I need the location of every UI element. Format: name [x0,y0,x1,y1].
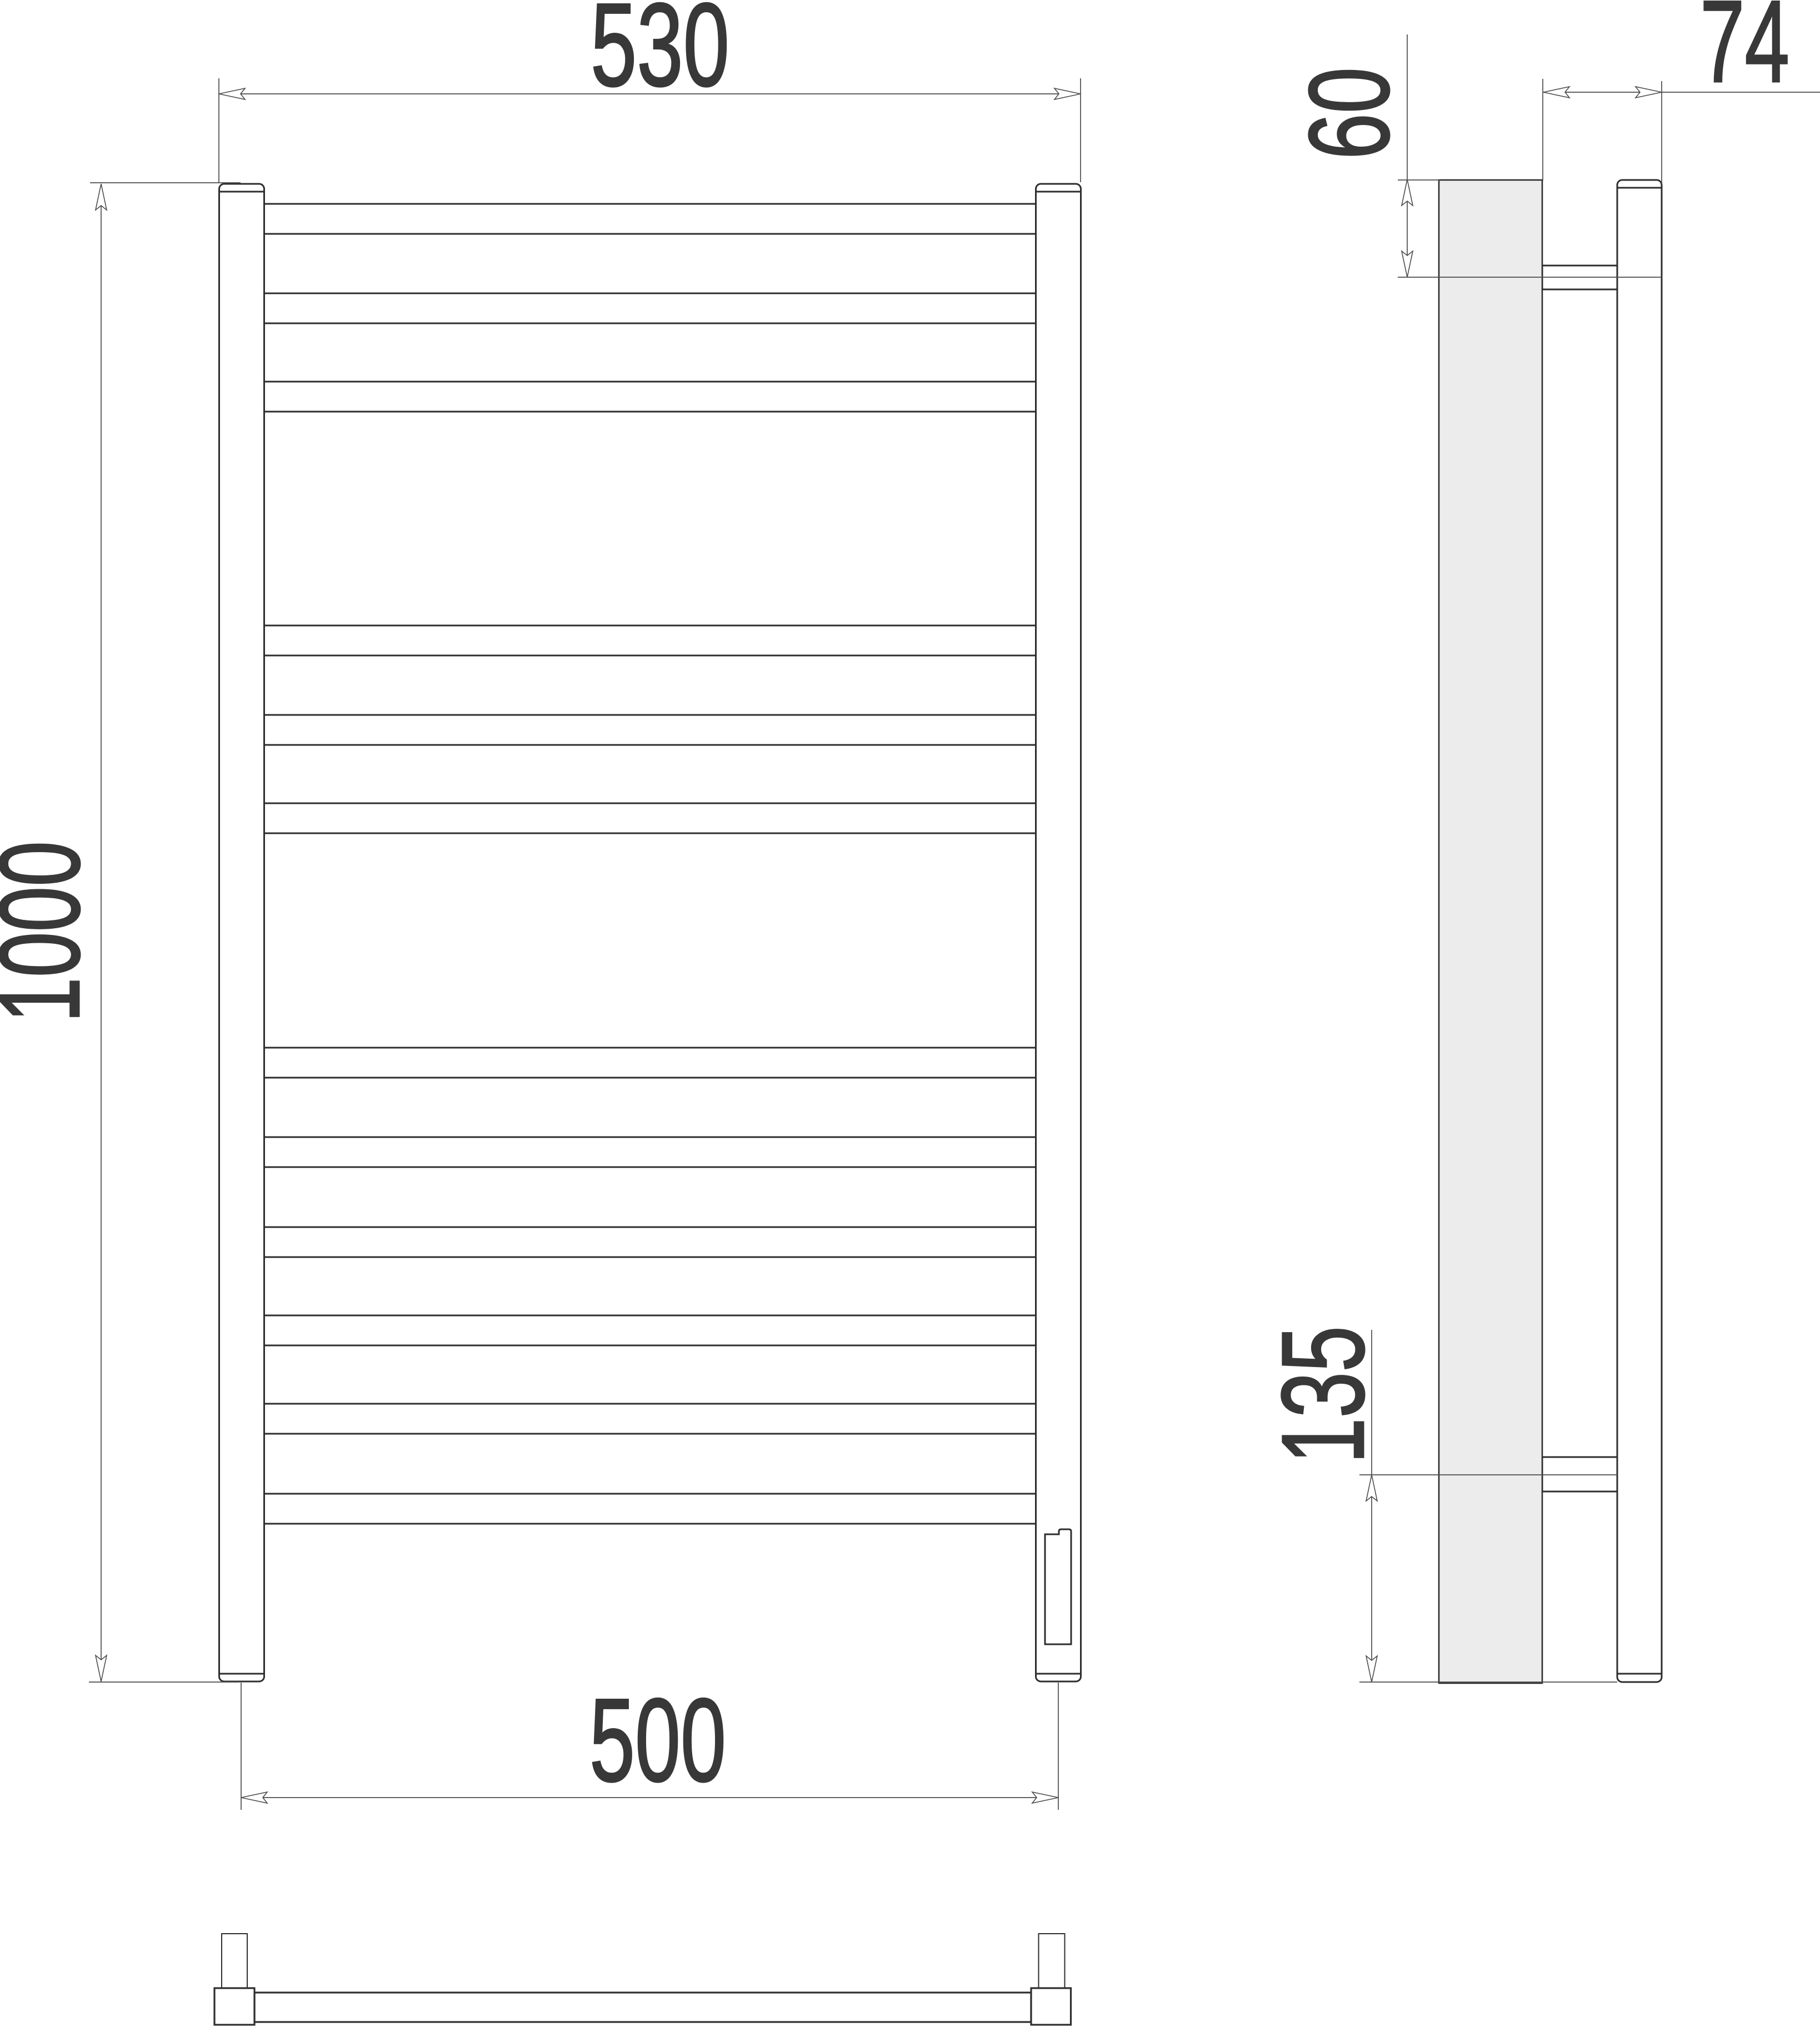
svg-text:1000: 1000 [0,841,103,1023]
svg-text:500: 500 [589,1674,726,1806]
svg-text:530: 530 [591,0,729,111]
svg-text:74: 74 [1700,0,1789,107]
svg-text:135: 135 [1257,1326,1388,1464]
svg-text:60: 60 [1286,67,1413,159]
